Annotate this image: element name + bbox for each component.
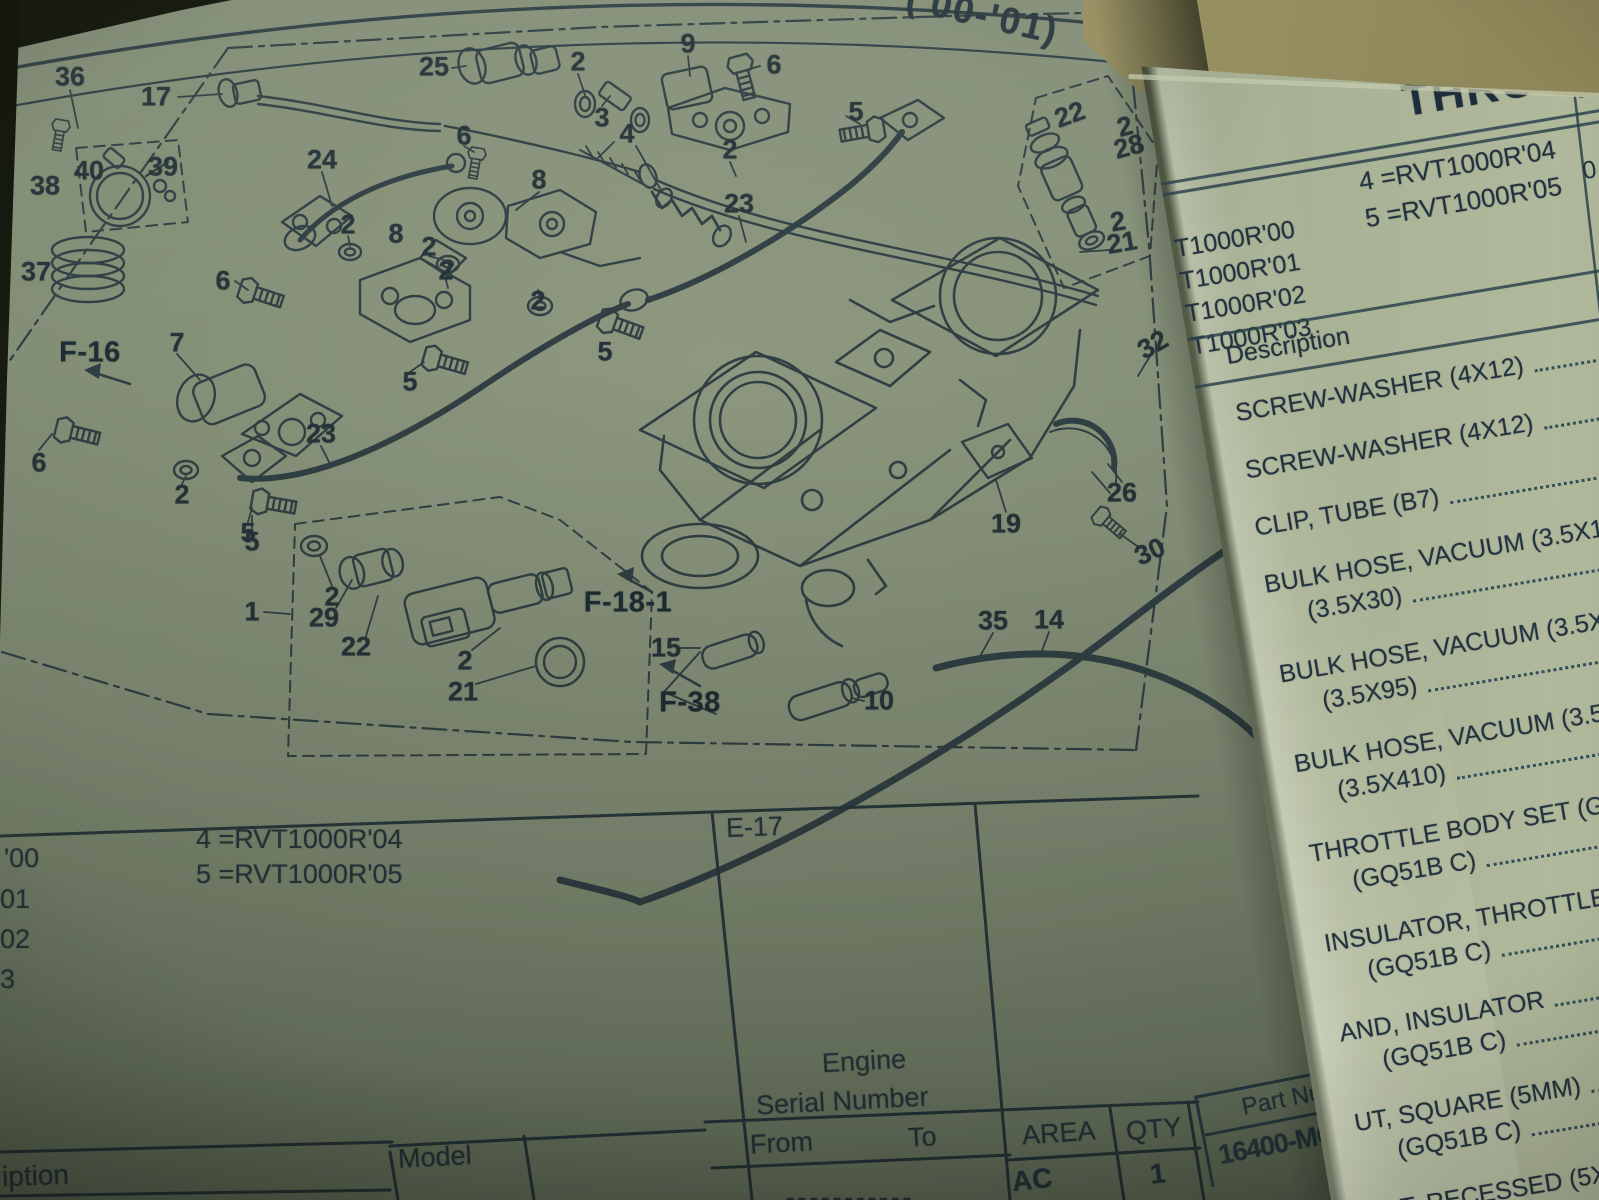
serial-number-header: Serial Number	[755, 1082, 929, 1122]
part-number-label: 35	[978, 606, 1008, 637]
part-number-label: 23	[724, 189, 754, 220]
part-number-label: F-18-1	[584, 587, 672, 620]
part-number-label: 14	[1034, 605, 1064, 636]
cut-year-label: 02	[0, 924, 30, 955]
part-number-label: 19	[991, 509, 1021, 540]
part-number-label: 5	[402, 367, 417, 398]
part-number-label: 5	[597, 337, 612, 368]
part-number-label: 2	[530, 286, 545, 317]
serial-from-dashes: -----------	[786, 1182, 914, 1200]
from-header: From	[749, 1126, 814, 1160]
qty-header: QTY	[1125, 1112, 1183, 1148]
part-number-label: 4	[619, 119, 634, 150]
part-number-label: 17	[141, 82, 171, 113]
cut-year-label: 3	[0, 964, 15, 995]
area-value: AC	[1010, 1162, 1054, 1198]
part-number-label: 40	[74, 156, 104, 187]
part-number-label: 2	[324, 582, 339, 613]
part-number-label: 6	[766, 50, 781, 81]
cut-year-label: 01	[0, 884, 30, 915]
page-ref-cell: E-17	[725, 811, 783, 844]
part-number-label: 2	[174, 480, 189, 511]
part-number-label: 5	[848, 97, 863, 128]
part-number-label: 2	[570, 47, 585, 78]
part-number-label: 2	[421, 232, 436, 263]
part-number-label: 9	[680, 29, 695, 60]
part-number-label: 39	[148, 152, 178, 183]
catalog-photo: 36 17 25 2 9 6 3 4 2 5 8 24	[0, 0, 1599, 1200]
footnote-line-1: 4 =RVT1000R'04	[196, 824, 403, 855]
part-number-label: 25	[419, 52, 449, 83]
part-number-label: 5	[244, 527, 259, 558]
part-number-label: 5	[240, 518, 255, 549]
part-number-label: 2	[340, 210, 355, 241]
part-number-label: 6	[215, 266, 230, 297]
part-number-label: 38	[30, 171, 60, 202]
part-number-label: 10	[864, 686, 894, 717]
part-number-label: F-16	[59, 337, 121, 370]
part-number-label: 8	[388, 219, 403, 250]
area-header: AREA	[1021, 1115, 1097, 1151]
to-header: To	[907, 1121, 937, 1153]
description-header-cut: iption	[1, 1159, 69, 1193]
part-number-label: 2	[457, 646, 472, 677]
part-number-label: 24	[307, 145, 337, 176]
part-number-label: 8	[531, 165, 546, 196]
part-number-label: 3	[594, 103, 609, 134]
part-number-label: 21	[448, 677, 478, 708]
part-number-label: 2	[1108, 205, 1128, 238]
part-number-label: 2	[722, 135, 737, 166]
part-number-label: 22	[1051, 95, 1090, 134]
part-number-label: 15	[651, 633, 681, 664]
part-number-label: 7	[169, 328, 184, 359]
footnote-line-2: 5 =RVT1000R'05	[196, 859, 403, 890]
page-title-fragment: ('00-'01)	[902, 0, 1062, 53]
part-number-label: 1	[244, 597, 259, 628]
model-header: Model	[397, 1140, 472, 1175]
part-number-label: 30	[1130, 532, 1170, 573]
qty-value: 1	[1148, 1157, 1167, 1190]
part-number-label: 6	[456, 121, 471, 152]
part-number-label: 36	[55, 62, 85, 93]
part-number-label: 23	[306, 419, 336, 450]
part-number-label: F-38	[659, 687, 721, 720]
engine-header: Engine	[821, 1044, 907, 1079]
part-number-label: 22	[341, 632, 371, 663]
part-number-label: 2	[438, 256, 453, 287]
part-number-label: 26	[1107, 478, 1137, 509]
part-number-label: 6	[31, 448, 46, 479]
cut-year-label: '00	[4, 843, 39, 874]
part-number-label: 37	[21, 257, 51, 288]
part-number-label: 29	[309, 603, 339, 634]
